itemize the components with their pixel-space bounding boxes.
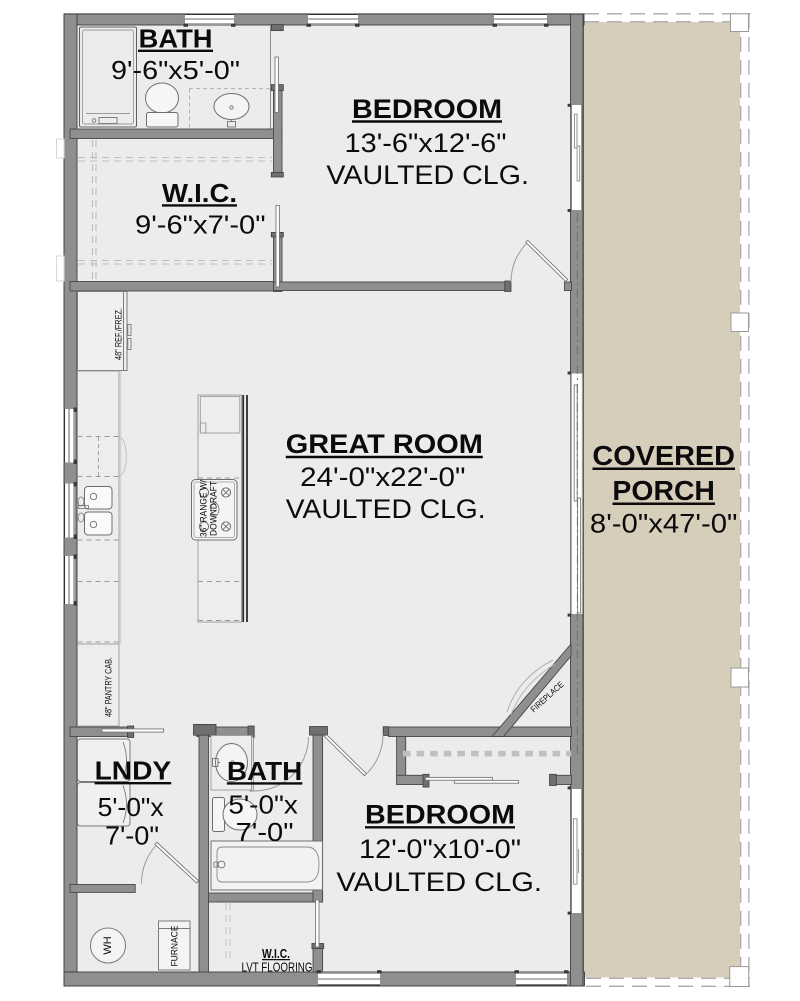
svg-text:VAULTED CLG.: VAULTED CLG. [286, 494, 486, 524]
svg-text:GREAT ROOM: GREAT ROOM [286, 429, 483, 459]
svg-text:W.I.C.: W.I.C. [162, 178, 237, 208]
svg-text:COVERED: COVERED [592, 440, 735, 471]
svg-text:FURNACE: FURNACE [170, 926, 180, 967]
svg-text:8'-0"x47'-0": 8'-0"x47'-0" [590, 509, 738, 539]
svg-text:BEDROOM: BEDROOM [352, 94, 502, 124]
svg-text:48" REF./FREZ.: 48" REF./FREZ. [114, 308, 124, 360]
svg-text:5'-0"x: 5'-0"x [98, 792, 164, 822]
svg-text:BATH: BATH [139, 24, 213, 54]
svg-text:7'-0": 7'-0" [105, 820, 159, 850]
svg-text:24'-0"x22'-0": 24'-0"x22'-0" [300, 462, 465, 492]
svg-text:VAULTED CLG.: VAULTED CLG. [326, 160, 529, 190]
svg-text:WH: WH [102, 936, 114, 954]
svg-text:LVT FLOORING: LVT FLOORING [242, 961, 313, 975]
svg-text:PORCH: PORCH [612, 475, 715, 506]
svg-text:9'-6"x5'-0": 9'-6"x5'-0" [111, 55, 240, 85]
svg-text:LNDY: LNDY [95, 756, 172, 786]
svg-text:12'-0"x10'-0": 12'-0"x10'-0" [359, 834, 521, 864]
svg-text:5'-0"x: 5'-0"x [228, 789, 298, 819]
svg-text:7'-0": 7'-0" [236, 817, 294, 847]
svg-text:W.I.C.: W.I.C. [262, 947, 290, 961]
svg-text:BATH: BATH [227, 756, 302, 786]
svg-text:13'-6"x12'-6": 13'-6"x12'-6" [345, 128, 507, 158]
svg-text:48" PANTRY CAB.: 48" PANTRY CAB. [104, 657, 114, 717]
svg-text:BEDROOM: BEDROOM [365, 800, 515, 830]
svg-text:DOWNDRAFT: DOWNDRAFT [209, 481, 220, 536]
svg-text:9'-6"x7'-0": 9'-6"x7'-0" [135, 210, 266, 240]
svg-text:VAULTED CLG.: VAULTED CLG. [336, 867, 542, 897]
